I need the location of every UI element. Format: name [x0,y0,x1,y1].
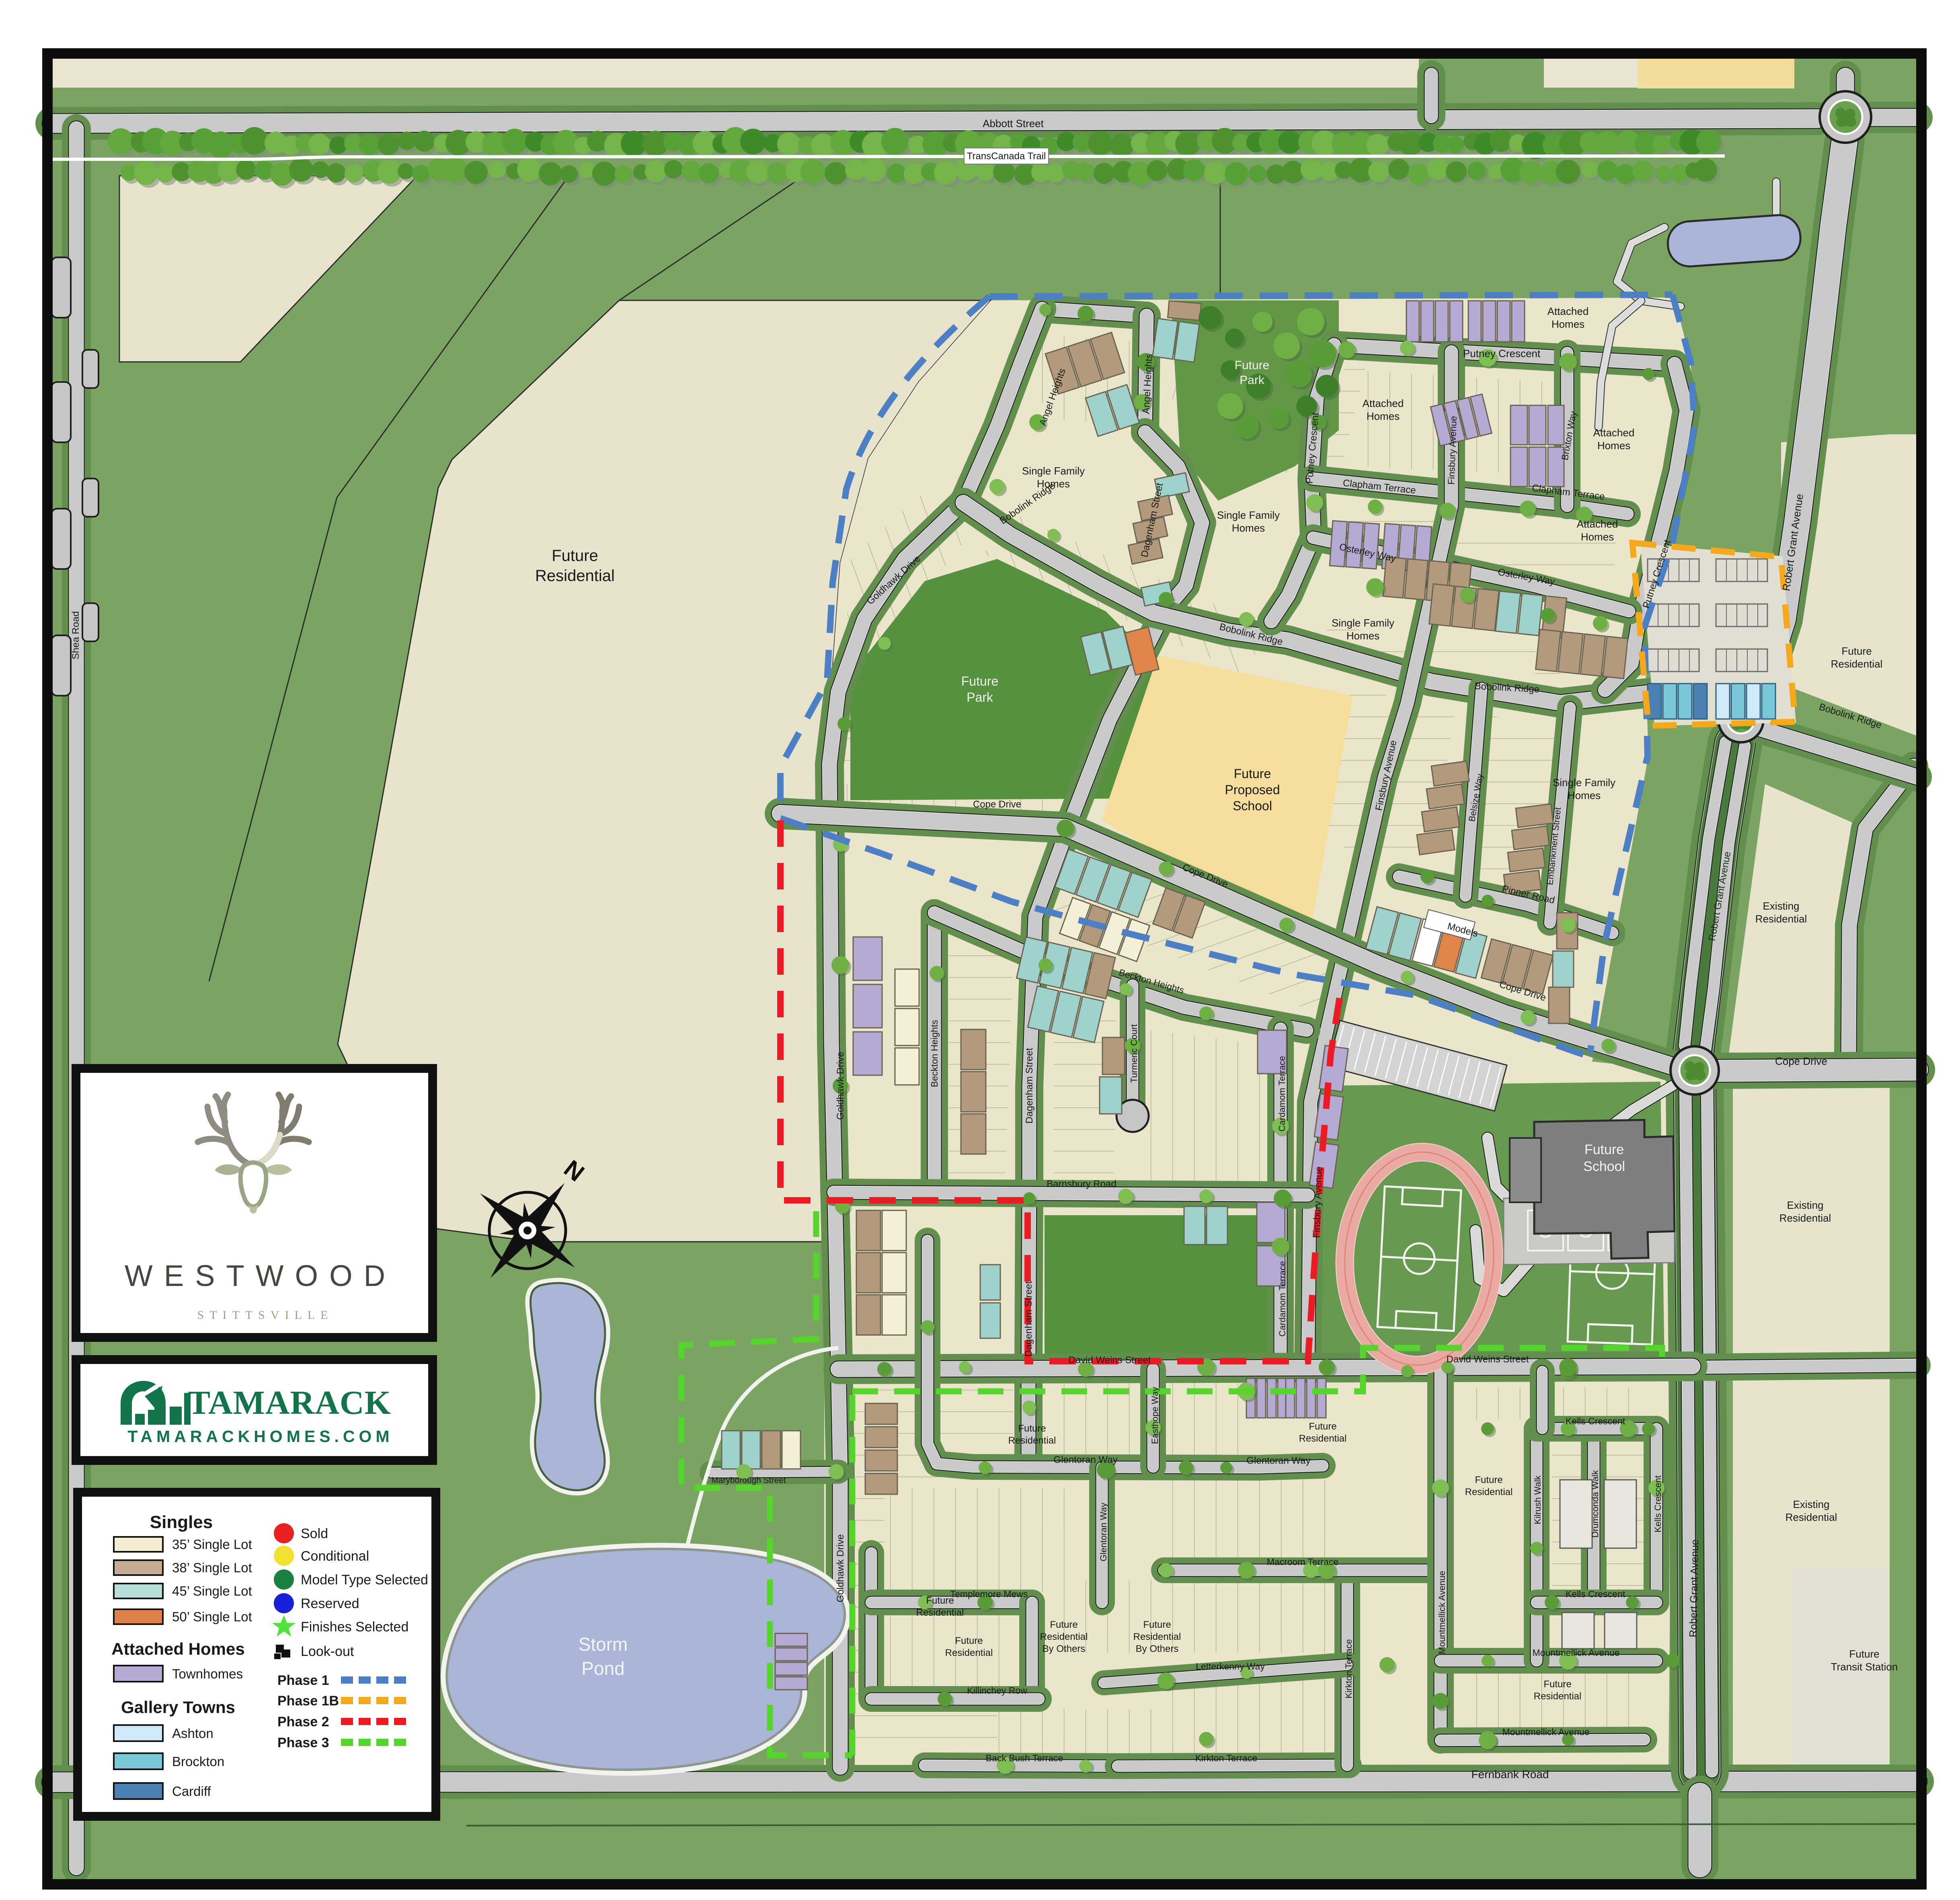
svg-text:50’ Single Lot: 50’ Single Lot [172,1609,252,1624]
svg-text:Single Family: Single Family [1217,509,1280,521]
svg-text:Future: Future [1018,1423,1046,1434]
svg-text:Residential: Residential [1786,1511,1837,1523]
svg-text:Abbott Street: Abbott Street [983,117,1044,129]
svg-text:Residential: Residential [1299,1433,1347,1444]
svg-text:Barnsbury Road: Barnsbury Road [1047,1179,1116,1189]
svg-text:Cardamom Terrace: Cardamom Terrace [1277,1056,1287,1132]
svg-text:Kells Crescent: Kells Crescent [1653,1475,1663,1532]
svg-text:By Others: By Others [1136,1643,1179,1654]
svg-text:Kells Crescent: Kells Crescent [1566,1589,1625,1599]
svg-text:Sold: Sold [301,1526,328,1541]
svg-text:WESTWOOD: WESTWOOD [125,1259,396,1292]
svg-text:Cardiff: Cardiff [172,1784,211,1799]
svg-text:Future: Future [926,1595,954,1606]
svg-text:School: School [1583,1159,1625,1174]
svg-text:Reserved: Reserved [301,1596,359,1611]
svg-text:Residential: Residential [916,1607,964,1618]
svg-text:By Others: By Others [1043,1643,1086,1654]
svg-text:Future: Future [1849,1648,1879,1660]
svg-text:Glentoran Way: Glentoran Way [1246,1455,1310,1466]
svg-text:Residential: Residential [1133,1631,1181,1642]
svg-text:Ashton: Ashton [172,1726,213,1741]
svg-text:Model Type Selected: Model Type Selected [301,1572,428,1588]
svg-text:Townhomes: Townhomes [172,1666,243,1681]
svg-text:Mountmellick Avenue: Mountmellick Avenue [1437,1571,1447,1654]
svg-text:Attached: Attached [1547,305,1589,317]
svg-text:Easthope Way: Easthope Way [1150,1387,1160,1444]
svg-text:Kells Crescent: Kells Crescent [1566,1416,1625,1426]
svg-text:Residential: Residential [1008,1435,1056,1446]
svg-text:Turmeric Court: Turmeric Court [1129,1024,1139,1083]
svg-text:Homes: Homes [1232,522,1265,534]
svg-text:Phase 1: Phase 1 [277,1673,329,1688]
svg-text:Residential: Residential [1831,658,1883,670]
svg-text:Letterkenny Way: Letterkenny Way [1196,1661,1265,1672]
svg-text:Putney Crescent: Putney Crescent [1463,347,1541,359]
svg-text:Single Family: Single Family [1553,776,1615,789]
svg-text:Future: Future [1235,359,1270,372]
svg-text:Existing: Existing [1793,1498,1829,1510]
svg-text:45’ Single Lot: 45’ Single Lot [172,1584,252,1598]
svg-text:Homes: Homes [1367,410,1400,422]
svg-text:Future: Future [1543,1679,1571,1690]
svg-text:Kirkton Terrace: Kirkton Terrace [1344,1639,1354,1699]
svg-text:Single Family: Single Family [1022,465,1085,477]
svg-text:Mountmellick Avenue: Mountmellick Avenue [1533,1647,1620,1658]
svg-text:Macroom Terrace: Macroom Terrace [1267,1557,1339,1567]
svg-text:Existing: Existing [1763,900,1799,912]
svg-text:Brockton: Brockton [172,1754,224,1769]
svg-text:STITTSVILLE: STITTSVILLE [197,1308,334,1322]
svg-text:Future: Future [552,547,598,565]
svg-text:Residential: Residential [1465,1487,1513,1497]
svg-text:School: School [1233,799,1272,813]
svg-text:Homes: Homes [1037,478,1070,490]
svg-text:Residential: Residential [1755,913,1807,925]
svg-text:Templemore Mews: Templemore Mews [950,1589,1028,1599]
svg-text:Maryborough Street: Maryborough Street [711,1476,786,1485]
svg-text:Pond: Pond [581,1658,624,1679]
svg-text:Future: Future [1309,1421,1336,1432]
svg-text:Attached: Attached [1577,518,1618,530]
svg-text:Residential: Residential [1040,1631,1088,1642]
svg-text:Killinchey Row: Killinchey Row [967,1685,1027,1696]
svg-text:35’ Single Lot: 35’ Single Lot [172,1537,252,1552]
svg-text:Attached Homes: Attached Homes [111,1639,244,1658]
svg-text:Park: Park [967,690,993,705]
svg-text:Future: Future [1475,1475,1502,1485]
svg-text:Future: Future [955,1635,983,1646]
svg-text:Existing: Existing [1787,1199,1823,1211]
svg-text:Glentoran Way: Glentoran Way [1098,1503,1108,1561]
svg-text:Homes: Homes [1568,789,1601,801]
svg-text:38’ Single Lot: 38’ Single Lot [172,1560,252,1575]
svg-text:Goldhawk Drive: Goldhawk Drive [835,1534,846,1602]
svg-text:Beckton Heights: Beckton Heights [929,1020,940,1087]
svg-text:Singles: Singles [150,1512,213,1532]
svg-text:Storm: Storm [579,1634,628,1655]
svg-text:Attached: Attached [1593,427,1635,439]
svg-text:Residential: Residential [1534,1691,1582,1702]
svg-text:Transit Station: Transit Station [1831,1661,1898,1673]
svg-text:Future: Future [1050,1619,1077,1630]
svg-text:Homes: Homes [1581,531,1614,543]
svg-text:TAMARACK: TAMARACK [188,1384,391,1421]
svg-text:Look-out: Look-out [301,1644,354,1659]
svg-text:TransCanada Trail: TransCanada Trail [967,151,1046,162]
svg-text:Future: Future [1234,766,1271,781]
svg-text:Future: Future [1584,1142,1624,1157]
svg-text:Gallery Towns: Gallery Towns [121,1698,235,1717]
svg-text:Attached: Attached [1363,397,1404,409]
svg-text:Residential: Residential [535,567,615,585]
svg-text:Finishes Selected: Finishes Selected [301,1619,408,1635]
svg-text:Cope Drive: Cope Drive [1775,1055,1827,1067]
svg-text:Phase 3: Phase 3 [277,1735,329,1750]
svg-text:Phase 1B: Phase 1B [277,1693,339,1709]
svg-text:David Weins Street: David Weins Street [1447,1354,1529,1365]
svg-text:Conditional: Conditional [301,1549,369,1564]
svg-text:Cope Drive: Cope Drive [973,799,1021,810]
svg-text:Proposed: Proposed [1225,783,1280,797]
svg-text:Kirkton Terrace: Kirkton Terrace [1195,1753,1257,1763]
svg-text:Homes: Homes [1346,630,1379,642]
svg-text:Future: Future [1143,1619,1171,1630]
svg-text:Kilrush Walk: Kilrush Walk [1533,1475,1543,1524]
svg-text:Dagenham Street: Dagenham Street [1024,1048,1035,1124]
svg-text:Future: Future [961,674,998,688]
svg-text:Future: Future [1841,645,1872,657]
svg-text:Cardamom Terrace: Cardamom Terrace [1277,1261,1287,1337]
svg-text:Phase 2: Phase 2 [277,1714,329,1730]
svg-text:Drumconda Walk: Drumconda Walk [1590,1470,1600,1538]
svg-text:Fernbank Road: Fernbank Road [1471,1768,1549,1781]
svg-text:Park: Park [1240,374,1265,387]
svg-text:Residential: Residential [1779,1212,1831,1224]
svg-text:Dagenham Street: Dagenham Street [1023,1281,1034,1357]
svg-text:Shea Road: Shea Road [70,611,81,659]
svg-text:Back Bush Terrace: Back Bush Terrace [986,1753,1063,1763]
svg-text:David Weins Street: David Weins Street [1069,1355,1151,1366]
svg-text:Mountmellick Avenue: Mountmellick Avenue [1502,1727,1590,1737]
svg-text:Goldhawk Drive: Goldhawk Drive [835,1052,846,1119]
svg-text:Homes: Homes [1597,440,1630,452]
svg-text:Single Family: Single Family [1332,617,1394,629]
svg-text:Robert Grant Avenue: Robert Grant Avenue [1687,1539,1701,1637]
svg-text:Homes: Homes [1552,318,1584,330]
svg-text:TAMARACKHOMES.COM: TAMARACKHOMES.COM [127,1427,393,1446]
svg-text:Residential: Residential [945,1647,993,1658]
svg-text:Glentoran Way: Glentoran Way [1053,1454,1117,1465]
